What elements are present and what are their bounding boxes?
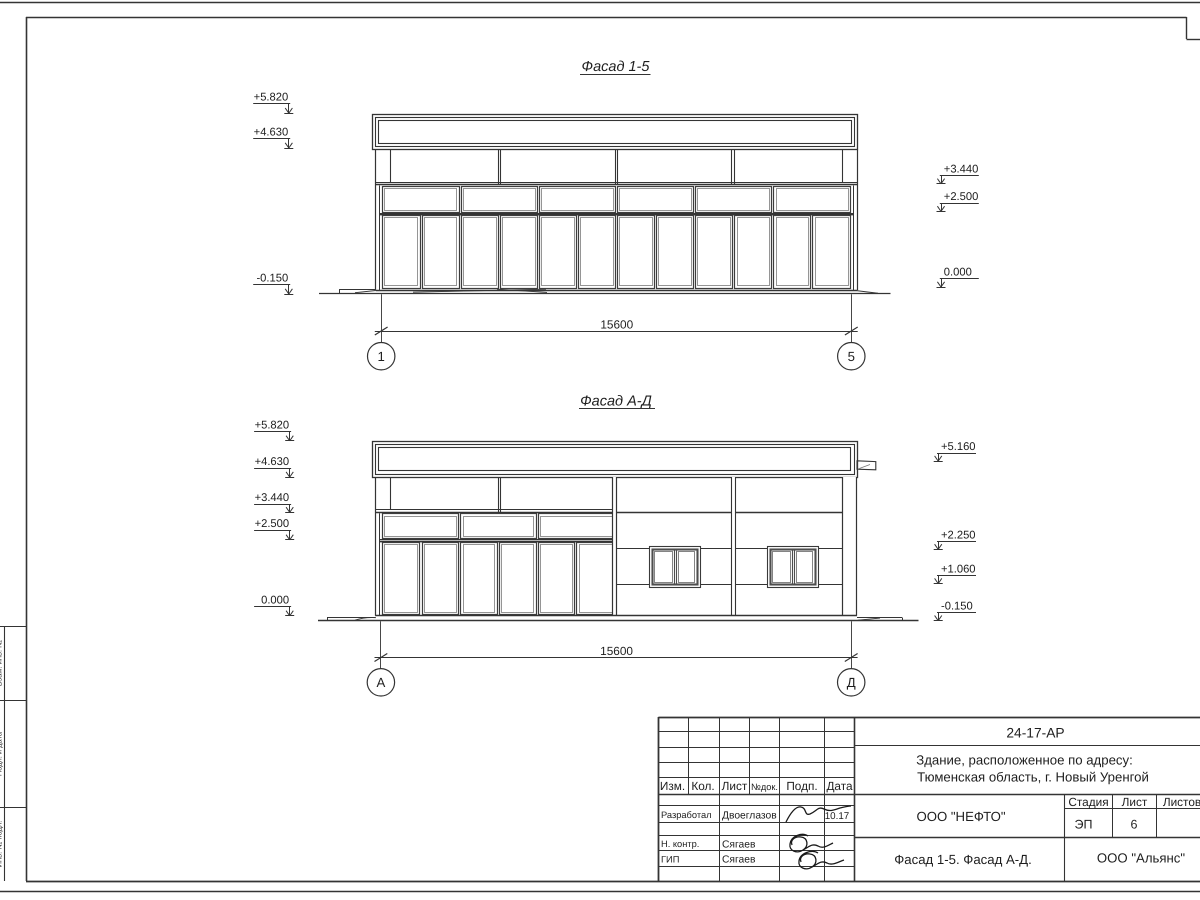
- svg-text:6: 6: [1131, 818, 1138, 832]
- svg-text:Инв. № подл.: Инв. № подл.: [0, 821, 4, 868]
- svg-text:Дата: Дата: [826, 779, 853, 793]
- svg-text:ЭП: ЭП: [1075, 818, 1093, 832]
- svg-text:Здание, расположенное по адрес: Здание, расположенное по адресу:: [916, 752, 1133, 767]
- svg-text:Подп.: Подп.: [786, 779, 817, 793]
- svg-text:Сягаев: Сягаев: [722, 855, 756, 866]
- svg-text:Фасад 1-5. Фасад А-Д.: Фасад 1-5. Фасад А-Д.: [894, 852, 1031, 867]
- svg-text:-0.150: -0.150: [941, 601, 973, 613]
- svg-text:А: А: [377, 675, 386, 690]
- svg-text:+2.250: +2.250: [941, 529, 976, 541]
- svg-text:Кол.: Кол.: [691, 779, 714, 793]
- svg-text:24-17-АР: 24-17-АР: [1006, 726, 1064, 741]
- svg-text:Стадия: Стадия: [1068, 795, 1108, 809]
- svg-text:Сягаев: Сягаев: [722, 840, 756, 851]
- svg-text:Разработал: Разработал: [661, 810, 712, 820]
- svg-text:Фасад А-Д: Фасад А-Д: [580, 393, 652, 409]
- svg-text:+2.500: +2.500: [944, 191, 979, 203]
- svg-text:5: 5: [848, 349, 855, 364]
- svg-text:+1.060: +1.060: [941, 563, 976, 575]
- svg-text:+3.440: +3.440: [255, 492, 290, 504]
- svg-text:+4.630: +4.630: [254, 127, 289, 139]
- svg-text:10.17: 10.17: [825, 811, 850, 822]
- svg-text:Двоеглазов: Двоеглазов: [722, 811, 777, 822]
- svg-text:15600: 15600: [600, 644, 633, 658]
- svg-text:+5.820: +5.820: [254, 92, 289, 104]
- svg-text:Подп. и дата: Подп. и дата: [0, 731, 4, 776]
- svg-text:Лист: Лист: [722, 779, 748, 793]
- svg-text:0.000: 0.000: [944, 267, 972, 279]
- svg-text:№док.: №док.: [751, 782, 778, 792]
- svg-text:+3.440: +3.440: [944, 163, 979, 175]
- svg-text:1: 1: [378, 349, 385, 364]
- svg-text:Фасад 1-5: Фасад 1-5: [582, 59, 651, 75]
- svg-text:Изм.: Изм.: [660, 779, 685, 793]
- svg-text:Лист: Лист: [1122, 795, 1148, 809]
- svg-text:ГИП: ГИП: [661, 855, 679, 865]
- svg-text:Н. контр.: Н. контр.: [661, 839, 699, 849]
- svg-text:ООО "Альянс": ООО "Альянс": [1097, 850, 1185, 865]
- svg-text:+2.500: +2.500: [255, 518, 290, 530]
- svg-text:+4.630: +4.630: [255, 456, 290, 468]
- svg-text:+5.820: +5.820: [255, 420, 290, 432]
- svg-text:Листов: Листов: [1163, 795, 1200, 809]
- svg-text:15600: 15600: [600, 318, 633, 332]
- svg-text:-0.150: -0.150: [256, 273, 288, 285]
- svg-text:Д: Д: [847, 675, 856, 690]
- svg-text:Тюменская область, г. Новый Ур: Тюменская область, г. Новый Уренгой: [917, 769, 1149, 784]
- svg-text:Взам. инв. №: Взам. инв. №: [0, 640, 4, 686]
- svg-text:ООО "НЕФТО": ООО "НЕФТО": [916, 809, 1005, 824]
- svg-text:0.000: 0.000: [261, 595, 289, 607]
- svg-text:+5.160: +5.160: [941, 441, 976, 453]
